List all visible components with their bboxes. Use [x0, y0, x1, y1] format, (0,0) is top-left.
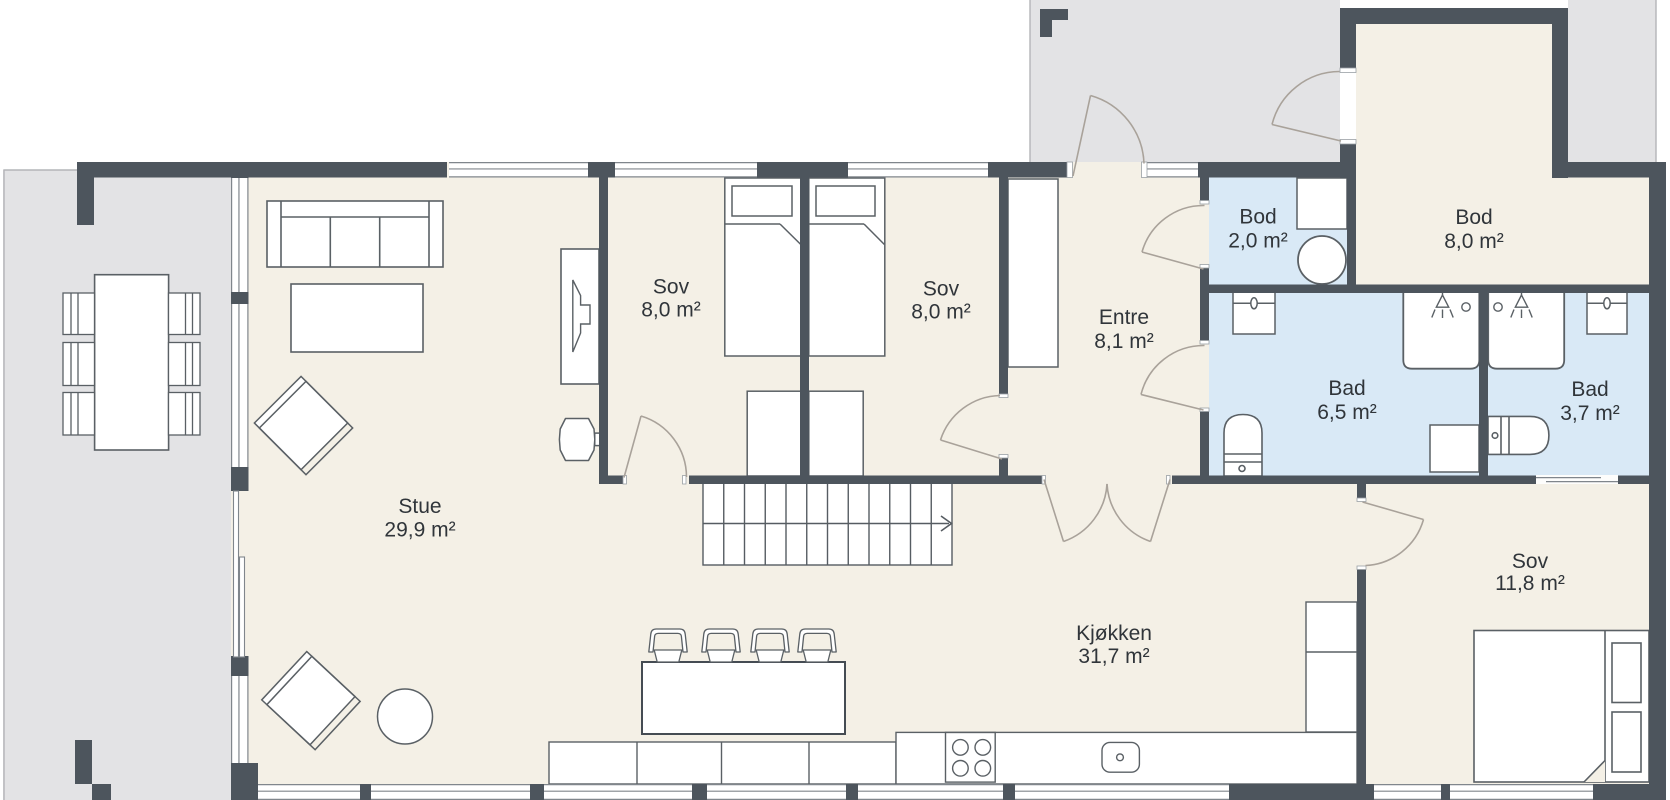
- svg-text:Sov: Sov: [923, 278, 960, 301]
- svg-text:Bod: Bod: [1239, 206, 1276, 229]
- svg-text:8,0 m²: 8,0 m²: [641, 299, 701, 322]
- svg-text:11,8 m²: 11,8 m²: [1495, 572, 1565, 595]
- svg-text:8,0 m²: 8,0 m²: [1444, 230, 1504, 253]
- svg-text:31,7 m²: 31,7 m²: [1078, 645, 1149, 668]
- svg-text:29,9 m²: 29,9 m²: [384, 519, 455, 542]
- svg-text:6,5 m²: 6,5 m²: [1317, 401, 1377, 424]
- svg-text:Bad: Bad: [1571, 378, 1608, 401]
- svg-text:Stue: Stue: [398, 495, 441, 518]
- svg-text:Kjøkken: Kjøkken: [1076, 622, 1152, 645]
- svg-text:Bad: Bad: [1328, 377, 1365, 400]
- svg-text:Bod: Bod: [1455, 206, 1492, 229]
- svg-text:Entre: Entre: [1099, 306, 1149, 329]
- svg-text:3,7 m²: 3,7 m²: [1560, 402, 1620, 425]
- svg-text:2,0 m²: 2,0 m²: [1228, 230, 1288, 253]
- svg-text:8,0 m²: 8,0 m²: [911, 301, 971, 324]
- svg-text:Sov: Sov: [1512, 550, 1549, 573]
- svg-text:Sov: Sov: [653, 276, 690, 299]
- svg-text:8,1 m²: 8,1 m²: [1094, 330, 1154, 353]
